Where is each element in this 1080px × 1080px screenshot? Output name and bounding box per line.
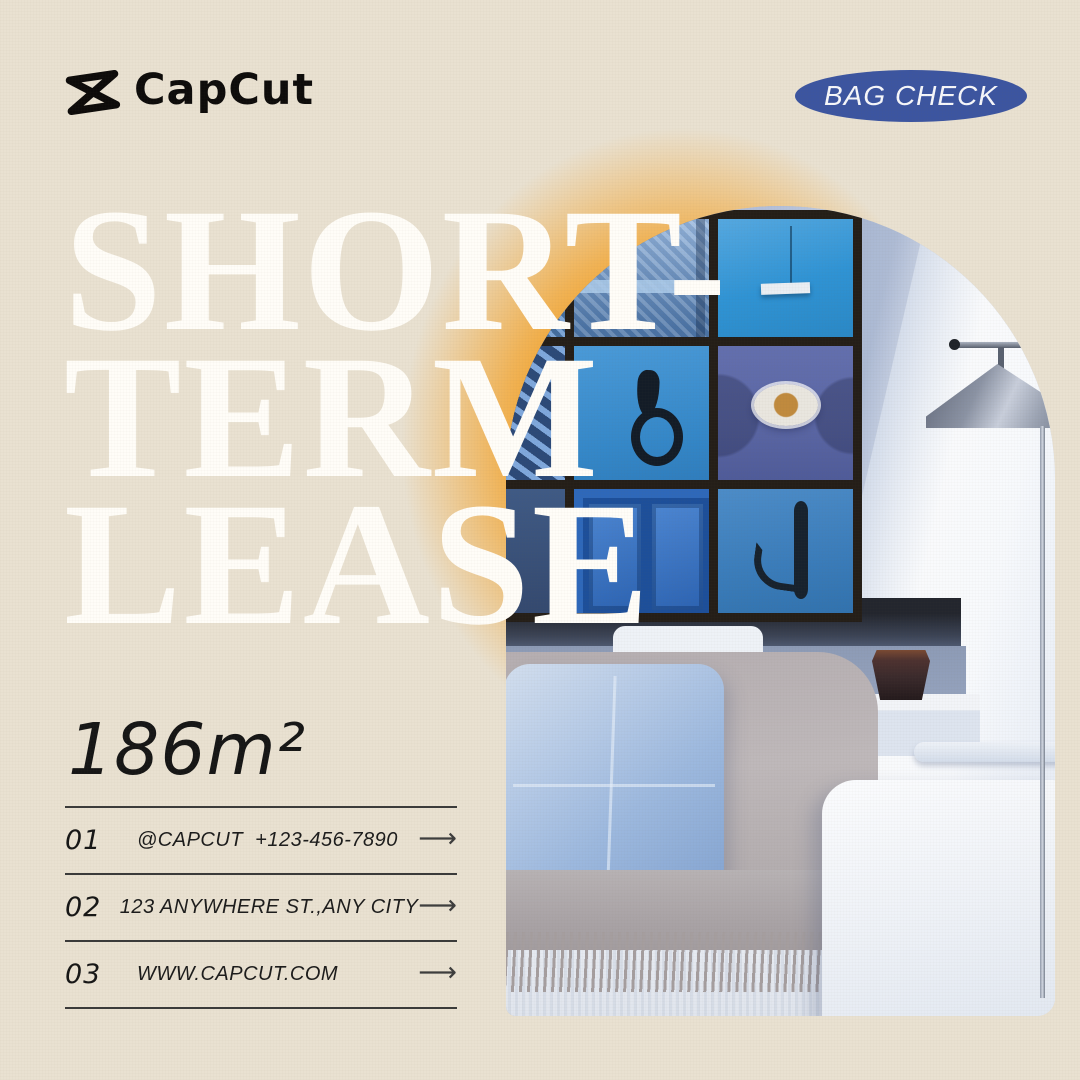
area-size: 186m² bbox=[68, 714, 306, 785]
arrow-icon[interactable]: ⟶ bbox=[418, 892, 457, 923]
contact-list: 01 @CAPCUT +123-456-7890 ⟶ 02 123 ANYWHE… bbox=[65, 806, 457, 1009]
round-side-table bbox=[914, 742, 1055, 762]
contact-number: 03 bbox=[65, 959, 137, 990]
blue-pillow bbox=[506, 664, 724, 894]
lamp-arm bbox=[952, 342, 1048, 348]
arrow-icon[interactable]: ⟶ bbox=[418, 959, 457, 990]
contact-row: 03 WWW.CAPCUT.COM ⟶ bbox=[65, 942, 457, 1007]
capcut-logo-icon bbox=[62, 68, 122, 117]
arrow-icon[interactable]: ⟶ bbox=[418, 825, 457, 856]
headline: SHORT- TERM LEASE bbox=[64, 197, 728, 638]
dark-vase bbox=[872, 650, 930, 700]
contact-number: 01 bbox=[65, 825, 137, 856]
contact-text: WWW.CAPCUT.COM bbox=[137, 963, 418, 986]
badge-label: BAG CHECK bbox=[824, 82, 998, 110]
door-tile bbox=[718, 219, 853, 337]
contact-number: 02 bbox=[65, 892, 120, 923]
contact-row: 01 @CAPCUT +123-456-7890 ⟶ bbox=[65, 808, 457, 873]
couch-arm bbox=[822, 780, 1055, 1016]
contact-text: @CAPCUT +123-456-7890 bbox=[137, 829, 418, 852]
door-tile bbox=[718, 346, 853, 480]
lamp-pole bbox=[1040, 426, 1045, 998]
contact-row: 02 123 ANYWHERE ST.,ANY CITY ⟶ bbox=[65, 875, 457, 940]
bag-check-badge[interactable]: BAG CHECK bbox=[795, 70, 1027, 122]
door-tile bbox=[718, 489, 853, 613]
divider bbox=[65, 1007, 457, 1009]
brand-name: CapCut bbox=[134, 69, 314, 116]
headline-line-3: LEASE bbox=[64, 491, 728, 638]
capcut-logo: CapCut bbox=[62, 68, 314, 117]
poster-canvas: CapCut BAG CHECK bbox=[0, 0, 1080, 1080]
contact-text: 123 ANYWHERE ST.,ANY CITY bbox=[120, 896, 419, 919]
